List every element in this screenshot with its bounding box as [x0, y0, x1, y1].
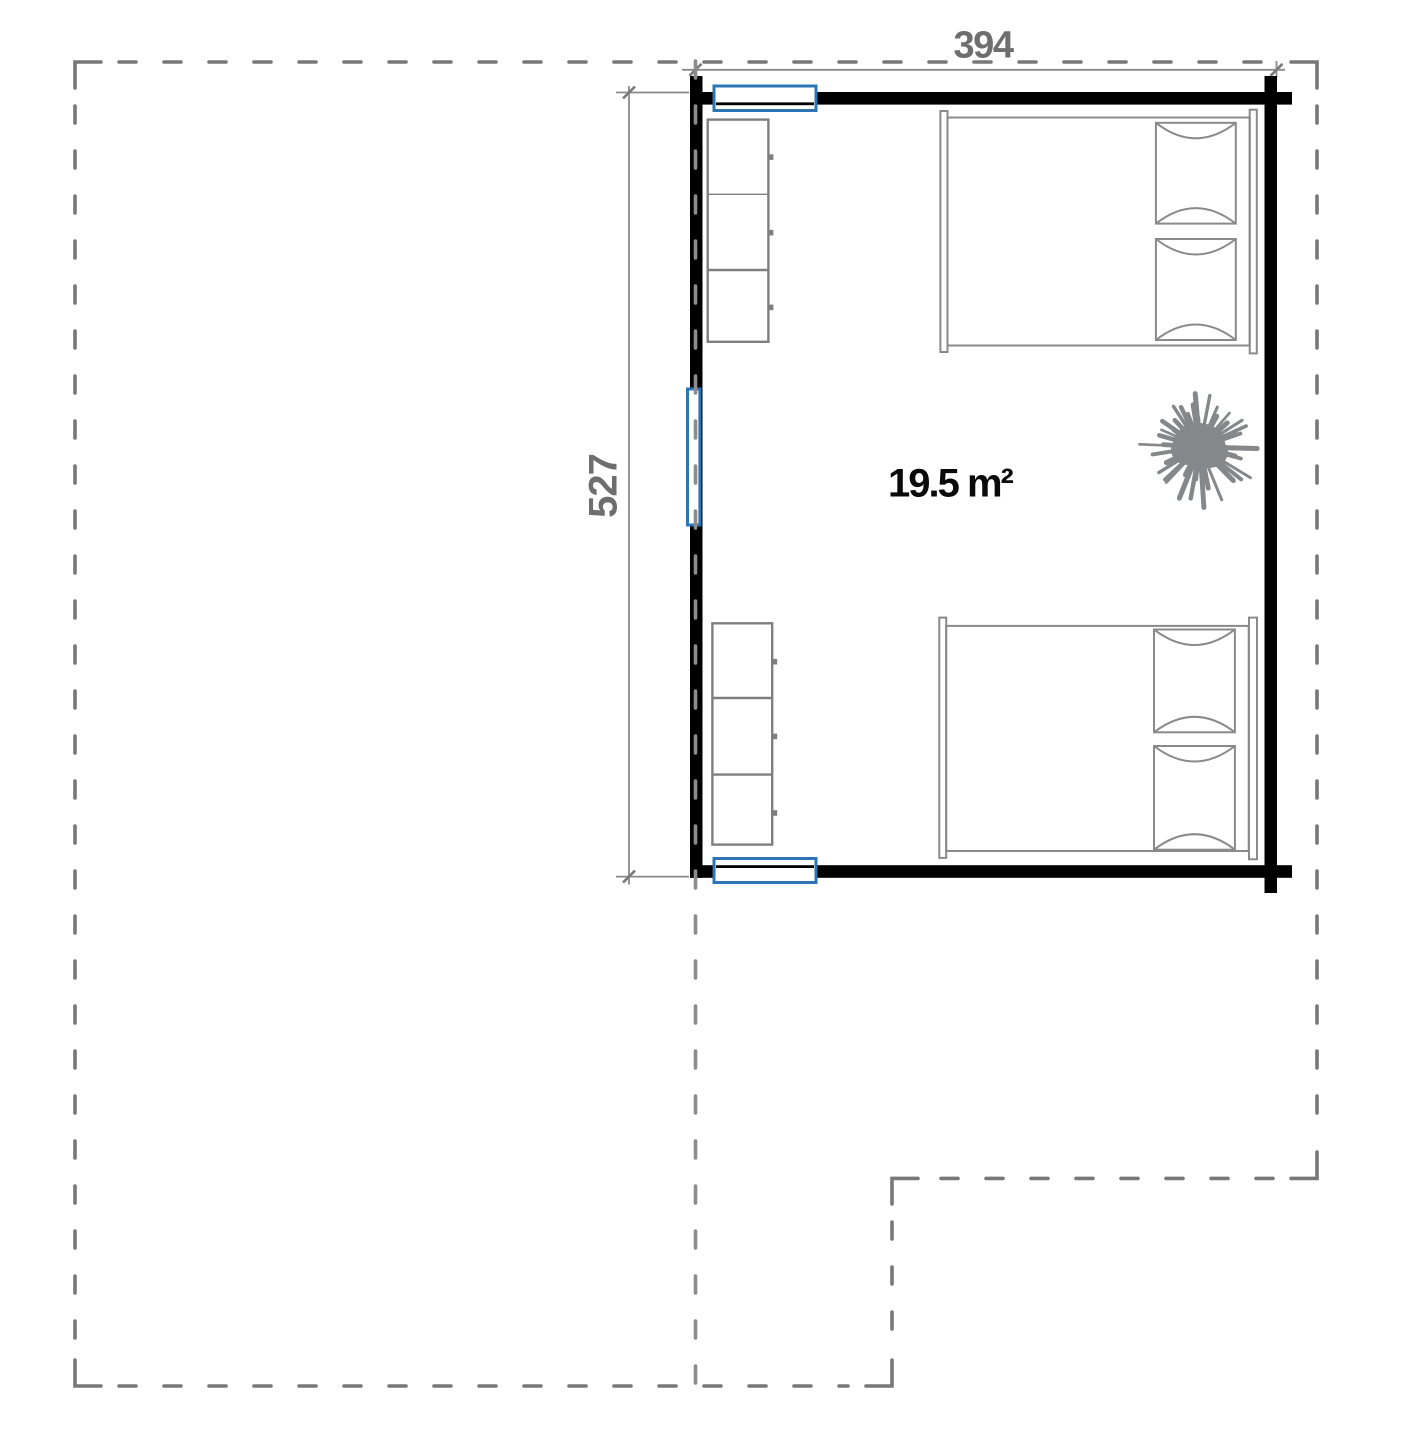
svg-text:527: 527 — [582, 454, 626, 518]
svg-text:394: 394 — [954, 25, 1014, 67]
svg-text:19.5 m²: 19.5 m² — [888, 462, 1014, 506]
